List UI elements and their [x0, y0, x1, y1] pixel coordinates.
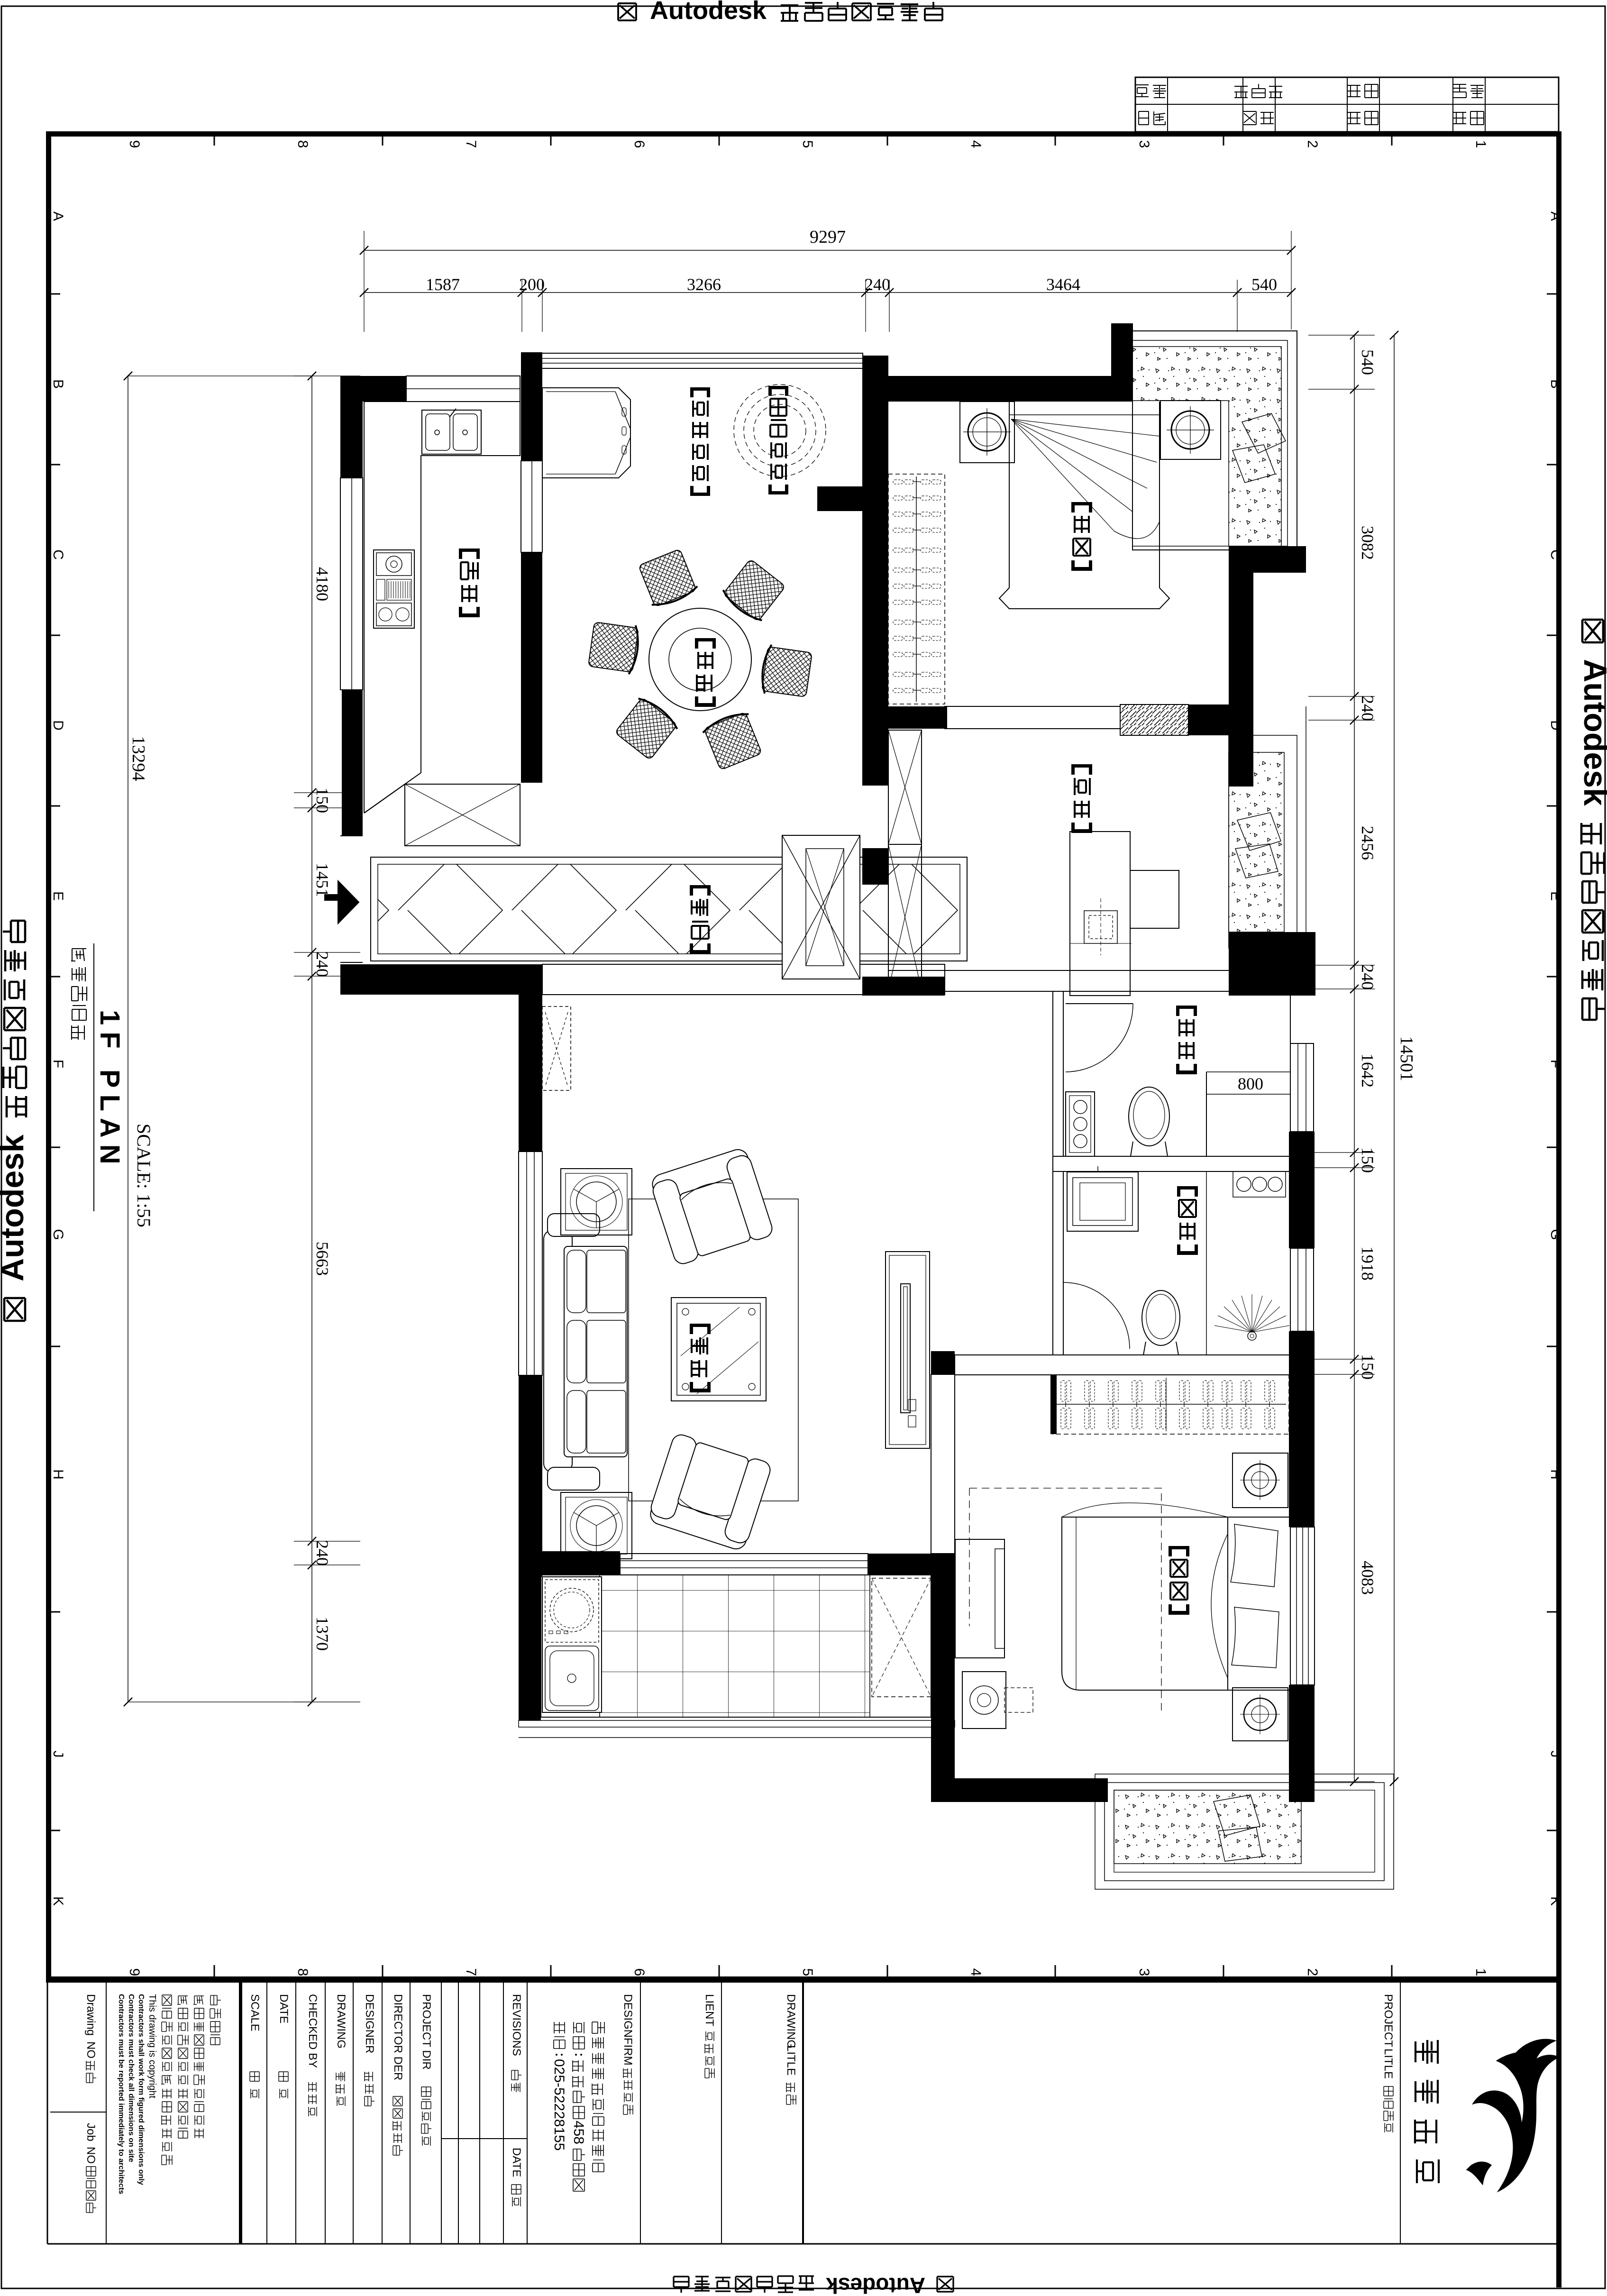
- svg-text:PROJECT: PROJECT: [1382, 1994, 1395, 2047]
- svg-text:240: 240: [1358, 695, 1377, 721]
- svg-text:1: 1: [1473, 1968, 1488, 1976]
- svg-text:3: 3: [1136, 140, 1152, 148]
- svg-text:4: 4: [968, 140, 984, 148]
- svg-text:REVISIONS: REVISIONS: [510, 1994, 523, 2056]
- svg-text:Contractors must check all dim: Contractors must check all dimensions on…: [127, 1994, 135, 2162]
- svg-text:H: H: [50, 1469, 66, 1480]
- svg-text:CHECKED BY: CHECKED BY: [306, 1994, 319, 2068]
- svg-text:F: F: [1548, 1060, 1563, 1068]
- svg-text:G: G: [1548, 1229, 1563, 1240]
- svg-text:025-52228155: 025-52228155: [551, 2059, 567, 2151]
- svg-text:Drawing: Drawing: [84, 1994, 97, 2036]
- svg-text:B: B: [50, 379, 66, 389]
- svg-text:D: D: [50, 720, 66, 731]
- svg-text:F: F: [50, 1060, 66, 1068]
- svg-text:DIRECTOR DER: DIRECTOR DER: [392, 1994, 404, 2080]
- svg-text:8: 8: [295, 1968, 310, 1976]
- svg-text:6: 6: [631, 140, 647, 148]
- svg-text:1451: 1451: [313, 863, 332, 897]
- svg-text:2: 2: [1305, 140, 1320, 148]
- svg-text:2: 2: [1305, 1968, 1320, 1976]
- svg-text:K: K: [1548, 1896, 1563, 1906]
- svg-text:540: 540: [1251, 275, 1277, 294]
- svg-text:14501: 14501: [1397, 1036, 1416, 1081]
- svg-text:D: D: [1548, 720, 1563, 731]
- svg-text:1370: 1370: [313, 1617, 332, 1651]
- svg-text:FIRM: FIRM: [621, 2038, 634, 2066]
- svg-text:Autodesk: Autodesk: [1577, 659, 1607, 806]
- svg-text:NO: NO: [84, 2147, 97, 2164]
- svg-text:H: H: [1548, 1469, 1563, 1480]
- svg-text:150: 150: [1358, 1147, 1377, 1173]
- svg-text:DATE: DATE: [277, 1994, 290, 2023]
- svg-text:1918: 1918: [1358, 1246, 1377, 1281]
- svg-text:Contractors shall work form fi: Contractors shall work form figured dime…: [137, 1994, 145, 2185]
- svg-text:150: 150: [313, 787, 332, 813]
- svg-text:3082: 3082: [1358, 526, 1377, 560]
- svg-text:1642: 1642: [1358, 1053, 1377, 1088]
- svg-text:3: 3: [1136, 1968, 1152, 1976]
- svg-text:J: J: [1548, 1751, 1563, 1758]
- svg-text:LITLE: LITLE: [1382, 2049, 1395, 2079]
- svg-text:Job: Job: [84, 2123, 97, 2141]
- svg-text:This drawing is copyright: This drawing is copyright: [147, 1994, 157, 2099]
- svg-text:3464: 3464: [1046, 275, 1080, 294]
- svg-text:458: 458: [571, 2121, 586, 2144]
- svg-text:240: 240: [313, 951, 332, 977]
- svg-text:8: 8: [295, 140, 310, 148]
- svg-text:DRAWING: DRAWING: [785, 1994, 797, 2049]
- svg-text:2456: 2456: [1358, 826, 1377, 860]
- svg-text:200: 200: [519, 275, 545, 294]
- svg-text:4083: 4083: [1358, 1561, 1377, 1595]
- svg-text:Autodesk: Autodesk: [650, 0, 767, 25]
- svg-text:9297: 9297: [810, 227, 846, 247]
- svg-text:Autodesk: Autodesk: [0, 1134, 30, 1281]
- svg-text:240: 240: [313, 1540, 332, 1566]
- svg-text:Contractors must be reported i: Contractors must be reported immediately…: [117, 1994, 125, 2194]
- svg-text:E: E: [50, 891, 66, 901]
- svg-text:Autodesk: Autodesk: [826, 2273, 925, 2296]
- svg-text:5663: 5663: [313, 1242, 332, 1276]
- svg-text:LITLE: LITLE: [785, 2045, 797, 2076]
- svg-text:DATE: DATE: [510, 2148, 523, 2177]
- svg-text:NO: NO: [84, 2041, 97, 2058]
- svg-text:800: 800: [1238, 1074, 1263, 1093]
- svg-text:DESIGN: DESIGN: [621, 1994, 634, 2038]
- svg-text:9: 9: [127, 140, 142, 148]
- svg-text:J: J: [50, 1751, 66, 1758]
- svg-text:240: 240: [865, 275, 890, 294]
- svg-text:LIENT: LIENT: [703, 1994, 716, 2026]
- svg-text:1F PLAN: 1F PLAN: [94, 1010, 125, 1171]
- svg-text:5: 5: [800, 1968, 815, 1976]
- svg-text:G: G: [50, 1229, 66, 1240]
- svg-text:DESIGNER: DESIGNER: [363, 1994, 376, 2053]
- svg-text:A: A: [50, 211, 66, 221]
- svg-text:4: 4: [968, 1968, 984, 1976]
- svg-text:C: C: [50, 549, 66, 560]
- svg-text:E: E: [1548, 891, 1563, 901]
- svg-text:K: K: [50, 1896, 66, 1906]
- svg-text:150: 150: [1358, 1354, 1377, 1380]
- svg-text:13294: 13294: [128, 736, 148, 781]
- svg-text:DRAWING: DRAWING: [335, 1994, 347, 2049]
- svg-text:B: B: [1548, 379, 1563, 389]
- svg-text:SCALE: SCALE: [248, 1994, 261, 2031]
- svg-text:PROJECT DIR: PROJECT DIR: [420, 1994, 433, 2070]
- svg-text:6: 6: [631, 1968, 647, 1976]
- svg-text:1: 1: [1473, 140, 1488, 148]
- svg-text:9: 9: [127, 1968, 142, 1976]
- svg-text:A: A: [1548, 211, 1563, 221]
- svg-text:5: 5: [800, 140, 815, 148]
- svg-text:C: C: [1548, 549, 1563, 560]
- svg-text:3266: 3266: [687, 275, 721, 294]
- svg-text:7: 7: [463, 140, 479, 148]
- svg-text:4180: 4180: [313, 567, 332, 601]
- svg-text:240: 240: [1358, 964, 1377, 990]
- svg-text:540: 540: [1358, 349, 1377, 375]
- svg-text:SCALE: 1:55: SCALE: 1:55: [133, 1124, 155, 1227]
- svg-text:1587: 1587: [426, 275, 460, 294]
- svg-text:7: 7: [463, 1968, 479, 1976]
